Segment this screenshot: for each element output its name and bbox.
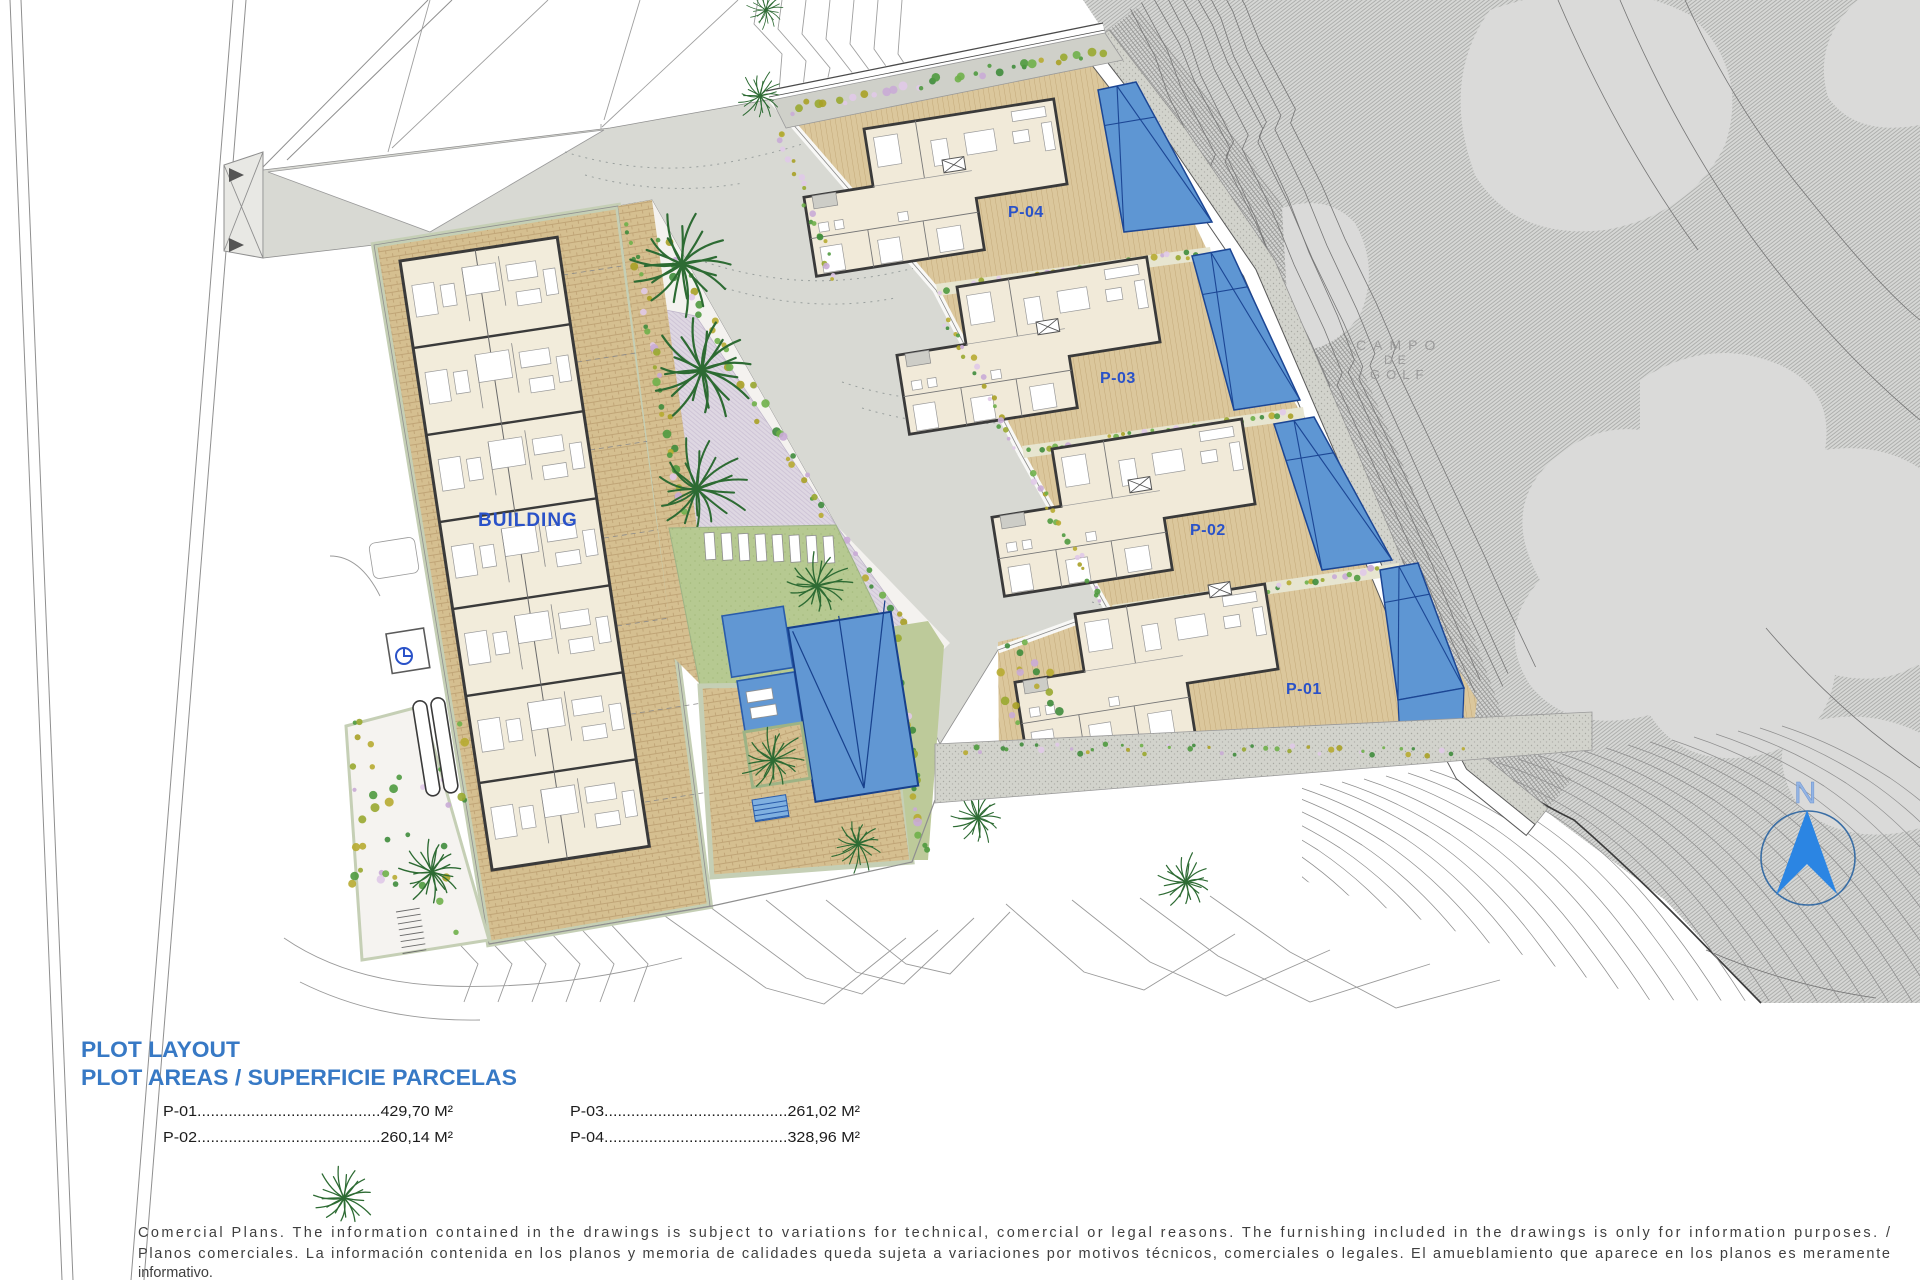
- svg-text:Planos comerciales. La informa: Planos comerciales. La información conte…: [138, 1246, 1890, 1262]
- svg-text:P-01..........................: P-01....................................…: [163, 1103, 453, 1120]
- svg-text:P-01: P-01: [1286, 681, 1322, 698]
- svg-text:PLOT AREAS / SUPERFICIE PARCEL: PLOT AREAS / SUPERFICIE PARCELAS: [81, 1065, 517, 1090]
- svg-text:CAMPO: CAMPO: [1356, 337, 1442, 353]
- svg-text:GOLF: GOLF: [1370, 367, 1429, 382]
- svg-text:informativo.: informativo.: [138, 1265, 213, 1280]
- svg-text:DE: DE: [1384, 353, 1411, 367]
- svg-text:P-04..........................: P-04....................................…: [570, 1129, 860, 1146]
- svg-text:P-04: P-04: [1008, 204, 1044, 221]
- svg-text:BUILDING: BUILDING: [478, 510, 578, 531]
- svg-text:P-03: P-03: [1100, 370, 1136, 387]
- svg-text:N: N: [1794, 775, 1816, 810]
- svg-text:P-02..........................: P-02....................................…: [163, 1129, 453, 1146]
- svg-text:PLOT LAYOUT: PLOT LAYOUT: [81, 1037, 241, 1062]
- svg-text:P-03..........................: P-03....................................…: [570, 1103, 860, 1120]
- svg-text:P-02: P-02: [1190, 522, 1226, 539]
